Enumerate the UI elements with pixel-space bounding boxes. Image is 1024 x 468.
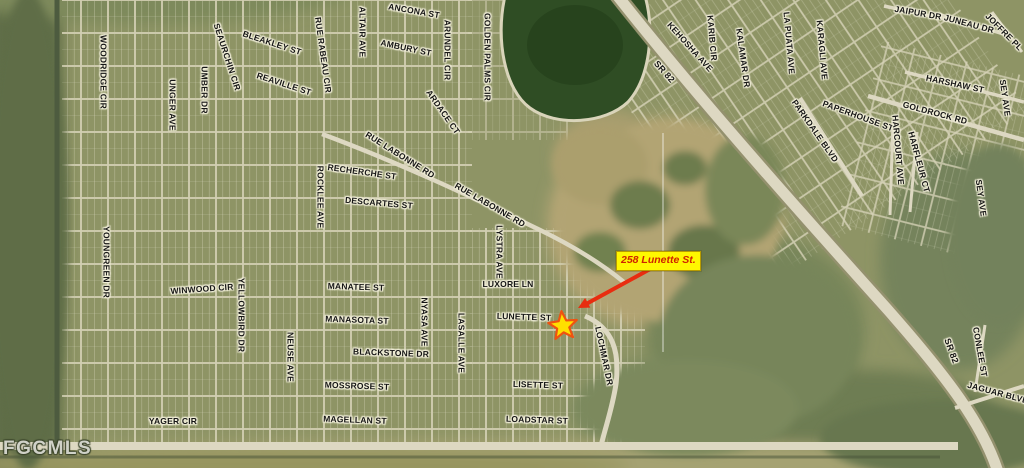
street-label-nyasa-ave: NYASA AVE bbox=[420, 297, 429, 346]
roads-layer bbox=[0, 0, 1024, 468]
marker-arrowhead-icon bbox=[578, 298, 590, 308]
street-label-manasota-st: MANASOTA ST bbox=[325, 315, 389, 326]
street-label-neuse-ave: NEUSE AVE bbox=[286, 332, 295, 382]
street-label-manatee-st: MANATEE ST bbox=[328, 282, 385, 292]
street-label-sey-ave: SEY AVE bbox=[998, 79, 1012, 117]
street-label-karib-cir: KARIB CIR bbox=[706, 15, 718, 61]
street-label-rocklee-ave: ROCKLEE AVE bbox=[316, 166, 325, 229]
aerial-terrain bbox=[0, 0, 1024, 468]
marker-star-icon bbox=[547, 310, 578, 340]
street-label-la-puata-ave: LA PUATA AVE bbox=[782, 12, 796, 75]
street-label-lunette-st: LUNETTE ST bbox=[497, 312, 552, 322]
wetland-woodland-layer bbox=[0, 0, 1024, 468]
marker-overlay bbox=[0, 0, 1024, 468]
aerial-map[interactable]: WOODRIDGE CIRUNGER AVEUMBER DRSEAURCHIN … bbox=[0, 0, 1024, 468]
street-label-lystra-ave: LYSTRA AVE bbox=[495, 225, 504, 279]
street-label-karagli-ave: KARAGLI AVE bbox=[815, 20, 829, 80]
street-label-paperhouse-st: PAPERHOUSE ST bbox=[821, 99, 894, 133]
street-label-ardace-ct: ARDACE CT bbox=[425, 88, 462, 135]
street-label-sey-ave: SEY AVE bbox=[974, 179, 988, 217]
street-label-sr-82: SR 82 bbox=[652, 59, 676, 84]
street-label-mossrose-st: MOSSROSE ST bbox=[325, 381, 390, 392]
marker-label: 258 Lunette St. bbox=[616, 251, 701, 271]
street-label-harshaw-st: HARSHAW ST bbox=[925, 74, 985, 95]
street-label-conlee-st: CONLEE ST bbox=[971, 326, 988, 377]
street-label-jaipur-dr: JAIPUR DR bbox=[894, 5, 942, 22]
street-label-sr-82: SR 82 bbox=[942, 337, 959, 365]
street-label-lisette-st: LISETTE ST bbox=[513, 380, 563, 390]
street-label-woodridge-cir: WOODRIDGE CIR bbox=[99, 35, 108, 109]
lake-deep bbox=[527, 5, 623, 85]
map-base bbox=[0, 0, 1024, 468]
street-label-loadstar-st: LOADSTAR ST bbox=[506, 415, 568, 426]
street-label-yellowbird-dr: YELLOWBIRD DR bbox=[237, 278, 246, 352]
street-label-rue-rabeau-cir: RUE RABEAU CIR bbox=[313, 17, 332, 94]
street-label-ambury-st: AMBURY ST bbox=[380, 38, 432, 57]
street-label-magellan-st: MAGELLAN ST bbox=[323, 415, 387, 426]
street-label-unger-ave: UNGER AVE bbox=[168, 79, 177, 130]
street-label-luxore-ln: LUXORE LN bbox=[483, 280, 534, 289]
street-label-harfleur-ct: HARFLEUR CT bbox=[907, 131, 931, 194]
street-label-yager-cir: YAGER CIR bbox=[149, 417, 197, 426]
street-label-ancona-st: ANCONA ST bbox=[388, 2, 441, 19]
highway-sr82-shoulder bbox=[616, 0, 998, 468]
street-label-arundel-cir: ARUNDEL CIR bbox=[443, 20, 452, 81]
street-label-bleakley-st: BLEAKLEY ST bbox=[242, 30, 303, 57]
street-label-recherche-st: RECHERCHE ST bbox=[327, 163, 397, 181]
street-label-winwood-cir: WINWOOD CIR bbox=[170, 283, 234, 296]
street-label-lasalle-ave: LASALLE AVE bbox=[457, 313, 466, 373]
street-label-kalamar-dr: KALAMAR DR bbox=[735, 28, 752, 88]
street-label-goldrock-rd: GOLDROCK RD bbox=[902, 100, 968, 125]
street-label-golden-palms-cir: GOLDEN PALMS CIR bbox=[483, 13, 492, 101]
street-label-blackstone-dr: BLACKSTONE DR bbox=[353, 347, 429, 358]
watermark: FGCMLS bbox=[3, 438, 92, 460]
street-label-reaville-st: REAVILLE ST bbox=[256, 71, 313, 97]
terrain-mottle-layer bbox=[0, 0, 1024, 468]
marker-arrow bbox=[588, 268, 652, 303]
street-label-lochmar-dr: LOCHMAR DR bbox=[594, 326, 615, 387]
street-label-umber-dr: UMBER DR bbox=[200, 66, 209, 113]
highway-sr82 bbox=[616, 0, 998, 468]
street-label-youngreen-dr: YOUNGREEN DR bbox=[102, 226, 111, 298]
street-label-rue-labonne-rd: RUE LABONNE RD bbox=[453, 181, 526, 228]
street-label-jaguar-blvd: JAGUAR BLVD bbox=[966, 381, 1024, 406]
street-label-descartes-st: DESCARTES ST bbox=[345, 196, 414, 210]
street-label-harcourt-ave: HARCOURT AVE bbox=[891, 115, 906, 185]
rue-labonne-road bbox=[322, 134, 625, 283]
street-label-seaurchin-cir: SEAURCHIN CIR bbox=[212, 22, 242, 91]
lake bbox=[501, 0, 650, 121]
street-label-altair-ave: ALTAIR AVE bbox=[358, 7, 367, 58]
